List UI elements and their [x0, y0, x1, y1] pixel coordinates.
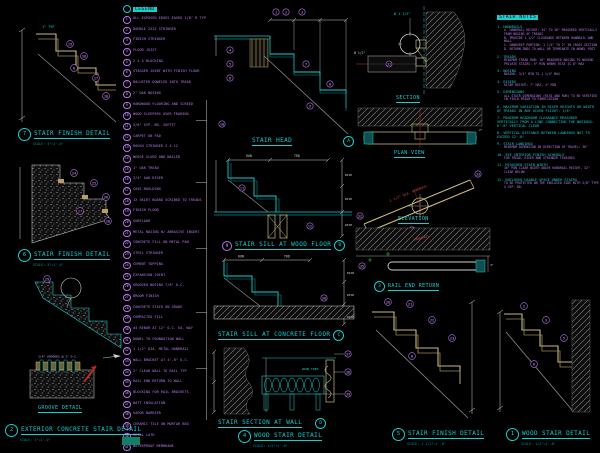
svg-text:5: 5	[563, 336, 565, 340]
stair-head-drawing: 1 2 3 4 5 6 7 8 9 10	[206, 6, 350, 136]
legend-item: 2 DOUBLE 2X12 STRINGER	[123, 27, 207, 35]
stair-section-wall-label: STAIR SECTION AT WALL D	[218, 418, 326, 429]
detail-ref-circle: 4	[238, 430, 251, 443]
bracket-section-label: SECTION	[396, 95, 420, 103]
legend-bullet-icon	[123, 5, 131, 13]
svg-text:27: 27	[78, 209, 82, 213]
legend-item: 10 WOOD SLEEPERS OVER FRAMING	[123, 112, 207, 120]
groove-detail-label: GROOVE DETAIL	[38, 405, 82, 413]
stair-finish-detail-5-drawing: 20 21 22 23 8	[352, 294, 480, 422]
legend-item: 17 COVE MOULDING	[123, 187, 207, 195]
svg-text:2: 2	[285, 10, 287, 14]
legend-item: 6 STAGGER JOINT WITH FINISH FLOOR	[123, 69, 207, 77]
legend-item: 35 RAIL END RETURN TO WALL	[123, 379, 207, 387]
stair-finish-detail-5-label: 5 STAIR FINISH DETAIL SCALE: 1 1/2"=1'-0…	[392, 428, 484, 446]
wood-stair-detail-1-label: 1 WOOD STAIR DETAIL SCALE: 1/2"=1'-0"	[506, 428, 590, 446]
legend-item: 27 BROOM FINISH	[123, 294, 207, 302]
svg-text:37: 37	[346, 352, 350, 356]
legend-item: 31 DOWEL TO FOUNDATION WALL	[123, 337, 207, 345]
svg-text:6: 6	[229, 76, 231, 80]
legend-item: 3 FINISH STRINGER	[123, 37, 207, 45]
dim-trd: TRD	[294, 154, 300, 158]
svg-text:2: 2	[523, 304, 525, 308]
legend-item: 9 HARDWOOD FLOORING AND SCREED	[123, 102, 207, 110]
callout-circle: 9	[222, 241, 232, 251]
legend-item: 5 2 X 4 BLOCKING	[123, 59, 207, 67]
legend-item: 38 VAPOR BARRIER	[123, 411, 207, 419]
svg-text:8: 8	[73, 66, 75, 70]
stair-note: 9. STAIR LANDINGS MINIMUM DIMENSION IN D…	[497, 142, 599, 150]
svg-text:12: 12	[308, 224, 312, 228]
dim-clear: 2"	[479, 128, 483, 132]
callout: 15 16 8 17 18	[67, 41, 110, 100]
title-block-mark	[122, 437, 140, 445]
detail-ref-circle: 6	[18, 249, 31, 262]
legend-item: 15 1" OAK TREAD	[123, 166, 207, 174]
stair-notes-list: 1. HANDRAILS A. HANDRAIL HEIGHT: 34" TO …	[497, 25, 599, 190]
linework	[20, 165, 110, 243]
svg-text:1" TYP: 1" TYP	[42, 25, 54, 29]
elevation-label: ELEVATION	[398, 216, 429, 224]
legend-item: 25 EXPANSION JOINT	[123, 273, 207, 281]
groove-detail-drawing: 1/4" GROOVES @ 1" O.C.	[22, 352, 104, 404]
stair-note: 4. RISERS RISER HEIGHT: 7" MAX, 4" MIN	[497, 80, 599, 88]
legend-item: 18 1X SKIRT BOARD SCRIBED TO TREADS	[123, 198, 207, 206]
svg-text:10: 10	[220, 122, 224, 126]
stair-note: 6. MAXIMUM VARIATION IN RISER HEIGHTS OR…	[497, 105, 599, 113]
stair-notes: STAIR NOTES 1. HANDRAILS A. HANDRAIL HEI…	[497, 3, 599, 190]
svg-text:5: 5	[229, 62, 231, 66]
dim-run: RUN	[246, 154, 252, 158]
dim-return: 4"	[490, 263, 494, 267]
callout: 35	[359, 263, 365, 269]
legend-item: 39 CERAMIC TILE ON MORTAR BED	[123, 422, 207, 430]
svg-text:18: 18	[104, 94, 108, 98]
dim-run: RUN	[238, 255, 244, 259]
stair-note: 5. DIMENSIONS ALL STAIR DIMENSIONS (RISE…	[497, 90, 599, 102]
svg-text:9: 9	[309, 104, 311, 108]
linework	[358, 108, 482, 148]
linework	[372, 300, 475, 418]
svg-text:3: 3	[545, 318, 547, 322]
stair-details-sheet: 1" TYP 15 16 8 17 18 7 STAIR FINISH DETA…	[0, 0, 600, 453]
callout: 20 21 22 23 8	[385, 299, 456, 360]
linework	[214, 158, 352, 238]
svg-text:25: 25	[92, 181, 96, 185]
svg-text:21: 21	[408, 302, 412, 306]
svg-text:28: 28	[106, 219, 110, 223]
svg-text:7: 7	[305, 62, 307, 66]
legend-item: 33 WALL BRACKET AT 4'-0" O.C.	[123, 358, 207, 366]
stair-finish-detail-6-drawing: 24 25 26 27 28	[8, 155, 120, 247]
stair-note: 1. HANDRAILS A. HANDRAIL HEIGHT: 34" TO …	[497, 25, 599, 52]
stair-finish-detail-7-drawing: 1" TYP 15 16 8 17 18	[8, 10, 120, 128]
legend-item: 12 CARPET ON PAD	[123, 134, 207, 142]
linework	[356, 6, 465, 94]
legend-item: 34 2" CLEAR WALL TO RAIL TYP	[123, 369, 207, 377]
legend-item: 28 CONCRETE STAIR ON GRADE	[123, 305, 207, 313]
svg-text:29: 29	[45, 277, 49, 281]
linework	[35, 278, 121, 358]
legend-item: 22 CONCRETE FILL ON METAL PAN	[123, 240, 207, 248]
legend-item: 23 STEEL STRINGER	[123, 251, 207, 259]
legend-item: 24 CEMENT TOPPING	[123, 262, 207, 270]
stair-sill-wood-drawing: RUN TRD RISE RISE RISE 11 12	[206, 150, 354, 240]
wood-stair-detail-1-drawing: 2 3 5 6	[494, 292, 598, 422]
detail-ref-circle: 2	[5, 424, 18, 437]
legend-list: 1 ALL EXPOSED EDGES EASED 1/8" R TYP 2 D…	[123, 16, 207, 453]
linework	[214, 258, 354, 326]
legend: LEGEND 1 ALL EXPOSED EDGES EASED 1/8" R …	[123, 5, 207, 453]
svg-text:35: 35	[360, 264, 364, 268]
legend-item: 37 BATT INSULATION	[123, 401, 207, 409]
legend-item: 13 ROUGH STRINGER 2 X 12	[123, 144, 207, 152]
detail-ref-circle: 5	[392, 428, 405, 441]
legend-item: 26 GROOVED NOSING 7/8" O.C.	[123, 283, 207, 291]
callout: 1 2 3 4 5 6 7 8 9 10	[219, 9, 333, 127]
section-marker: D	[315, 418, 326, 429]
svg-text:3: 3	[301, 10, 303, 14]
stair-note: 2. TREADS MINIMUM TREAD RUN: 10" MEASURE…	[497, 55, 599, 67]
svg-text:8: 8	[411, 354, 413, 358]
svg-text:8: 8	[329, 82, 331, 86]
leader-line	[196, 248, 207, 249]
legend-item: 20 SUBFLOOR	[123, 219, 207, 227]
callout: 32	[386, 61, 392, 67]
rail-end-return-label: 3 RAIL END RETURN	[374, 281, 439, 292]
legend-item: 7 BALUSTER DOWELED INTO TREAD	[123, 80, 207, 88]
callout: 29	[44, 276, 51, 283]
svg-text:26: 26	[104, 195, 108, 199]
stair-notes-title: STAIR NOTES	[497, 15, 538, 20]
legend-item: 21 METAL NOSING W/ ABRASIVE INSERT	[123, 230, 207, 238]
stair-head-label: STAIR HEAD A	[252, 136, 354, 147]
svg-text:38: 38	[346, 370, 350, 374]
stair-sill-concrete-drawing: RUN TRD RISE RISE RISE 30	[206, 252, 358, 330]
stair-note: 11. REQUIRED STAIR WIDTH 36" MIN CLEAR W…	[497, 163, 599, 175]
svg-text:32: 32	[387, 62, 391, 66]
svg-text:20: 20	[386, 300, 390, 304]
groove-dim-text: 1/4" GROOVES @ 1" O.C.	[38, 355, 78, 359]
legend-item: 19 FINISH FLOOR	[123, 208, 207, 216]
handrail-plan-view-drawing: 2"	[352, 106, 488, 150]
legend-header: LEGEND	[123, 5, 207, 13]
legend-item: 36 BLOCKING FOR RAIL BRACKETS	[123, 390, 207, 398]
svg-text:24: 24	[72, 171, 76, 175]
dim-bracket-dia: Ø 1/2"	[354, 50, 366, 55]
stair-sill-wood-label: 9 STAIR SILL AT WOOD FLOOR B	[222, 240, 345, 251]
linework	[214, 18, 348, 134]
linework	[497, 300, 590, 412]
stair-sill-concrete-label: STAIR SILL AT CONCRETE FLOOR C	[218, 330, 344, 341]
detail-ref-circle: 3	[374, 281, 385, 292]
svg-text:17: 17	[94, 76, 98, 80]
legend-item: 32 1 1/2" DIA. METAL HANDRAIL	[123, 347, 207, 355]
svg-text:4: 4	[229, 48, 231, 52]
stair-finish-detail-7-label: 7 STAIR FINISH DETAIL SCALE: 3"=1'-0"	[18, 128, 110, 146]
wood-stair-detail-4-label: 4 WOOD STAIR DETAIL SCALE: 1/2"=1'-0"	[238, 430, 322, 448]
linework: 1" TYP	[19, 25, 116, 122]
stair-section-wall-drawing: WOOD TRIM 37 38 39	[206, 342, 358, 418]
svg-text:23: 23	[450, 336, 454, 340]
svg-text:33: 33	[476, 172, 480, 176]
stair-finish-detail-6-label: 6 STAIR FINISH DETAIL SCALE: 3"=1'-0"	[18, 249, 110, 267]
svg-text:16: 16	[82, 54, 86, 58]
detail-ref-circle: 1	[506, 428, 519, 441]
legend-item: 1 ALL EXPOSED EDGES EASED 1/8" R TYP	[123, 16, 207, 24]
callout: 37 38 39	[345, 351, 351, 397]
svg-text:6: 6	[533, 362, 535, 366]
legend-item: 14 WEDGE GLUED AND NAILED	[123, 155, 207, 163]
legend-item: 16 3/4" OAK RISER	[123, 176, 207, 184]
linework	[356, 228, 490, 272]
legend-item: 11 5/8" GYP. BD. SOFFIT	[123, 123, 207, 131]
svg-text:32: 32	[358, 214, 362, 218]
legend-item: 30 #4 REBAR AT 12" O.C. EA. WAY	[123, 326, 207, 334]
svg-text:11: 11	[240, 186, 244, 190]
section-marker: C	[333, 330, 344, 341]
linework	[212, 348, 344, 414]
stair-note: 12. ENCLOSED USABLE SPACE UNDER STAIRS T…	[497, 178, 599, 190]
svg-text:15: 15	[68, 42, 72, 46]
svg-text:22: 22	[430, 318, 434, 322]
stair-note: 8. VERTICAL DISTANCE BETWEEN LANDINGS NO…	[497, 131, 599, 139]
svg-text:1: 1	[275, 10, 277, 14]
legend-item: 4 FLOOR JOIST	[123, 48, 207, 56]
dim-trd: TRD	[284, 255, 290, 259]
svg-text:39: 39	[346, 392, 350, 396]
stair-note: 3. NOSING NOSING: 3/4" MIN TO 1 1/4" MAX	[497, 69, 599, 77]
linework	[30, 360, 96, 398]
legend-item: 29 COMPACTED FILL	[123, 315, 207, 323]
legend-item: 8 2" OAK NOSING	[123, 91, 207, 99]
detail-ref-circle: 7	[18, 128, 31, 141]
stair-note: 7. MINIMUM HEADROOM CLEARANCE MEASURED V…	[497, 116, 599, 129]
dim-rail-dia: Ø 1 1/2"	[394, 11, 410, 16]
stair-note: 10. SEE INTERIOR FINISH SCHEDULE FOR TRE…	[497, 153, 599, 161]
svg-text:30: 30	[322, 296, 326, 300]
exterior-concrete-stair-label: 2 EXTERIOR CONCRETE STAIR DETAIL SCALE: …	[5, 424, 141, 442]
section-marker: B	[334, 240, 345, 251]
handrail-bracket-section-drawing: Ø 1 1/2" Ø 1/2" 32	[352, 4, 488, 96]
callout: 30	[321, 295, 327, 301]
wood-trim-note: WOOD TRIM	[302, 367, 318, 371]
plan-view-label: PLAN VIEW	[394, 150, 425, 158]
rail-end-return-drawing: HANDRAIL 4" 35	[350, 226, 496, 280]
